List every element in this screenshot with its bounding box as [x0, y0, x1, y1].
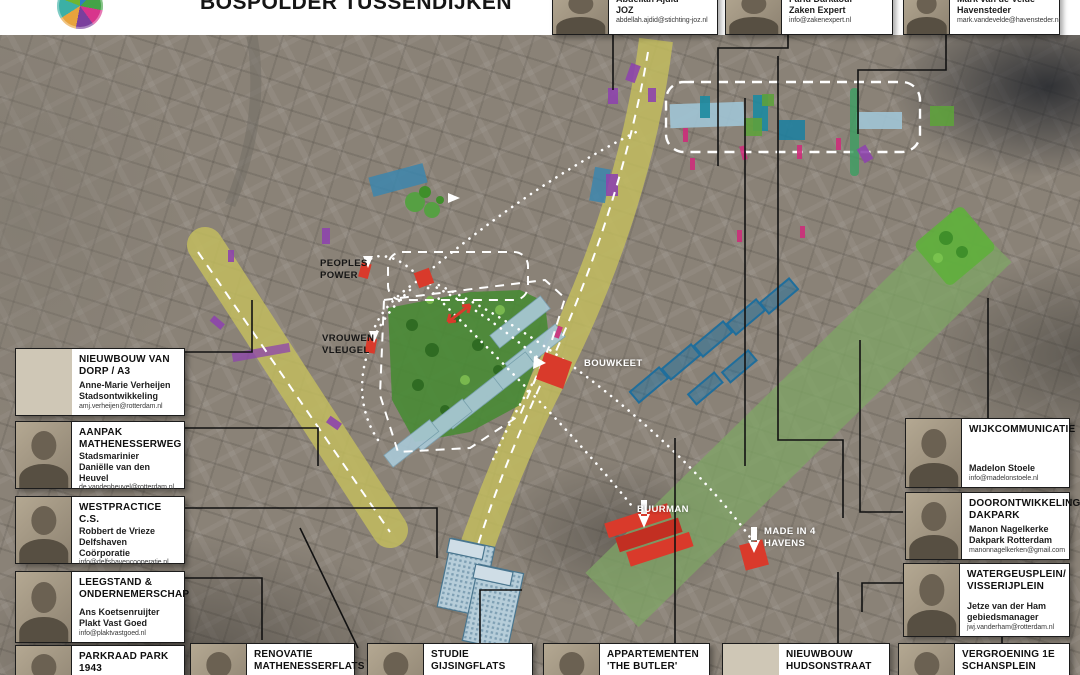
person-org: Dakpark Rotterdam — [969, 535, 1063, 546]
callout-vergroening-1e-schansplein: VERGROENING 1E SCHANSPLEIN — [898, 643, 1070, 675]
callout-westpractice: WESTPRACTICE C.S. Robbert de Vrieze Delf… — [15, 496, 185, 564]
person-email: mark.vandevelde@havensteder.nl — [957, 17, 1053, 25]
person-name: Robbert de Vrieze — [79, 526, 178, 537]
project-title: WESTPRACTICE C.S. — [79, 502, 178, 526]
person-email: jwj.vanderham@rotterdam.nl — [967, 624, 1063, 632]
photo-placeholder — [723, 644, 779, 675]
callout-renovatie-mathenesserflats: RENOVATIE MATHENESSERFLATS — [190, 643, 355, 675]
callout-nieuwbouw-hudsonstraat: NIEUWBOUW HUDSONSTRAAT — [722, 643, 890, 675]
label-peoples-power: PEOPLES POWER — [320, 258, 378, 282]
person-email: info@madelonstoele.nl — [969, 475, 1063, 483]
photo-vergroening — [899, 644, 955, 675]
poster-stage: BOSPOLDER TUSSENDIJKEN PEOPLES POWER VRO… — [0, 0, 1080, 675]
label-bouwkeet: BOUWKEET — [584, 358, 643, 370]
photo-robbert-de-vrieze — [16, 497, 72, 563]
label-buurman: BUURMAN — [637, 504, 689, 516]
project-title: RENOVATIE MATHENESSERFLATS — [254, 649, 348, 673]
photo-gijsingflats — [368, 644, 424, 675]
project-title: STUDIE GIJSINGFLATS — [431, 649, 526, 673]
photo-mark-van-de-velde — [904, 0, 950, 34]
callout-zaken-expert: Farid Darkaoui Zaken Expert info@zakenex… — [725, 0, 893, 35]
project-title: VERGROENING 1E SCHANSPLEIN — [962, 649, 1063, 673]
person-name: Anne-Marie Verheijen — [79, 380, 178, 391]
project-title: NIEUWBOUW HUDSONSTRAAT — [786, 649, 883, 673]
callout-doorontwikkeling-dakpark: DOORONTWIKKELING DAKPARK Manon Nagelkerk… — [905, 492, 1070, 560]
person-org: JOZ — [616, 5, 711, 16]
person-role: Stadsmarinier — [79, 451, 178, 462]
photo-madelon-stoele — [906, 419, 962, 487]
callout-parkraad-park-1943: PARKRAAD PARK 1943 — [15, 645, 185, 675]
photo-manon-nagelkerke — [906, 493, 962, 559]
person-email: info@zakenexpert.nl — [789, 17, 886, 25]
project-title: NIEUWBOUW VAN DORP / A3 — [79, 354, 178, 378]
project-title: WATERGEUSPLEIN/ VISSERIJPLEIN — [967, 569, 1063, 593]
person-org: Stadsontwikkeling — [79, 391, 178, 402]
photo-jetze-van-der-ham — [904, 564, 960, 636]
person-org: Plakt Vast Goed — [79, 618, 178, 629]
person-name: Jetze van der Ham — [967, 601, 1063, 612]
callout-joz: Abdellah Ajdid JOZ abdellah.ajdid@sticht… — [552, 0, 718, 35]
person-org: Delfshaven Coörporatie — [79, 537, 178, 560]
project-title: AANPAK MATHENESSERWEG — [79, 427, 178, 451]
page-title: BOSPOLDER TUSSENDIJKEN — [200, 0, 512, 15]
person-name: Daniëlle van den Heuvel — [79, 462, 178, 485]
project-title: APPARTEMENTEN 'THE BUTLER' — [607, 649, 703, 673]
person-name: Manon Nagelkerke — [969, 524, 1063, 535]
bospolder-tussendijken-logo — [57, 0, 103, 29]
person-email: amj.verheijen@rotterdam.nl — [79, 403, 178, 411]
photo-ans-koetsenruijter — [16, 572, 72, 642]
photo-parkraad — [16, 646, 72, 675]
photo-danielle-van-den-heuvel — [16, 422, 72, 488]
photo-farid-darkaoui — [726, 0, 782, 34]
person-email: info@delfshavencooperatie.nl — [79, 559, 178, 567]
project-title: PARKRAAD PARK 1943 — [79, 651, 178, 675]
person-org: Zaken Expert — [789, 5, 886, 16]
project-title: DOORONTWIKKELING DAKPARK — [969, 498, 1063, 522]
person-email: info@plaktvastgoed.nl — [79, 630, 178, 638]
callout-studie-gijsingflats: STUDIE GIJSINGFLATS — [367, 643, 533, 675]
callout-havensteder: Mark van de Velde Havensteder mark.vande… — [903, 0, 1060, 35]
callout-appartementen-the-butler: APPARTEMENTEN 'THE BUTLER' — [543, 643, 710, 675]
callout-nieuwbouw-van-dorp: NIEUWBOUW VAN DORP / A3 Anne-Marie Verhe… — [15, 348, 185, 416]
photo-the-butler — [544, 644, 600, 675]
person-name: Ans Koetsenruijter — [79, 607, 178, 618]
person-name: Madelon Stoele — [969, 463, 1063, 474]
callout-aanpak-mathenesserweg: AANPAK MATHENESSERWEG Stadsmarinier Dani… — [15, 421, 185, 489]
person-org: Havensteder — [957, 5, 1053, 16]
photo-abdellah-ajdid — [553, 0, 609, 34]
label-vrouwen-vleugel: VROUWEN VLEUGEL — [322, 333, 382, 357]
project-title: WIJKCOMMUNICATIE — [969, 424, 1063, 436]
callout-watergeusplein-visserijplein: WATERGEUSPLEIN/ VISSERIJPLEIN Jetze van … — [903, 563, 1070, 637]
photo-placeholder — [16, 349, 72, 415]
callout-leegstand-ondernemerschap: LEEGSTAND & ONDERNEMERSCHAP Ans Koetsenr… — [15, 571, 185, 643]
photo-renovatie — [191, 644, 247, 675]
project-title: LEEGSTAND & ONDERNEMERSCHAP — [79, 577, 178, 601]
person-email: abdellah.ajdid@stichting-joz.nl — [616, 17, 711, 25]
person-email: manonnagelkerken@gmail.com — [969, 547, 1063, 555]
person-role: gebiedsmanager — [967, 612, 1063, 623]
callout-wijkcommunicatie: WIJKCOMMUNICATIE Madelon Stoele info@mad… — [905, 418, 1070, 488]
person-email: de.vandenheuvel@rotterdam.nl — [79, 484, 178, 492]
label-made-in-4-havens: MADE IN 4 HAVENS — [764, 526, 822, 550]
